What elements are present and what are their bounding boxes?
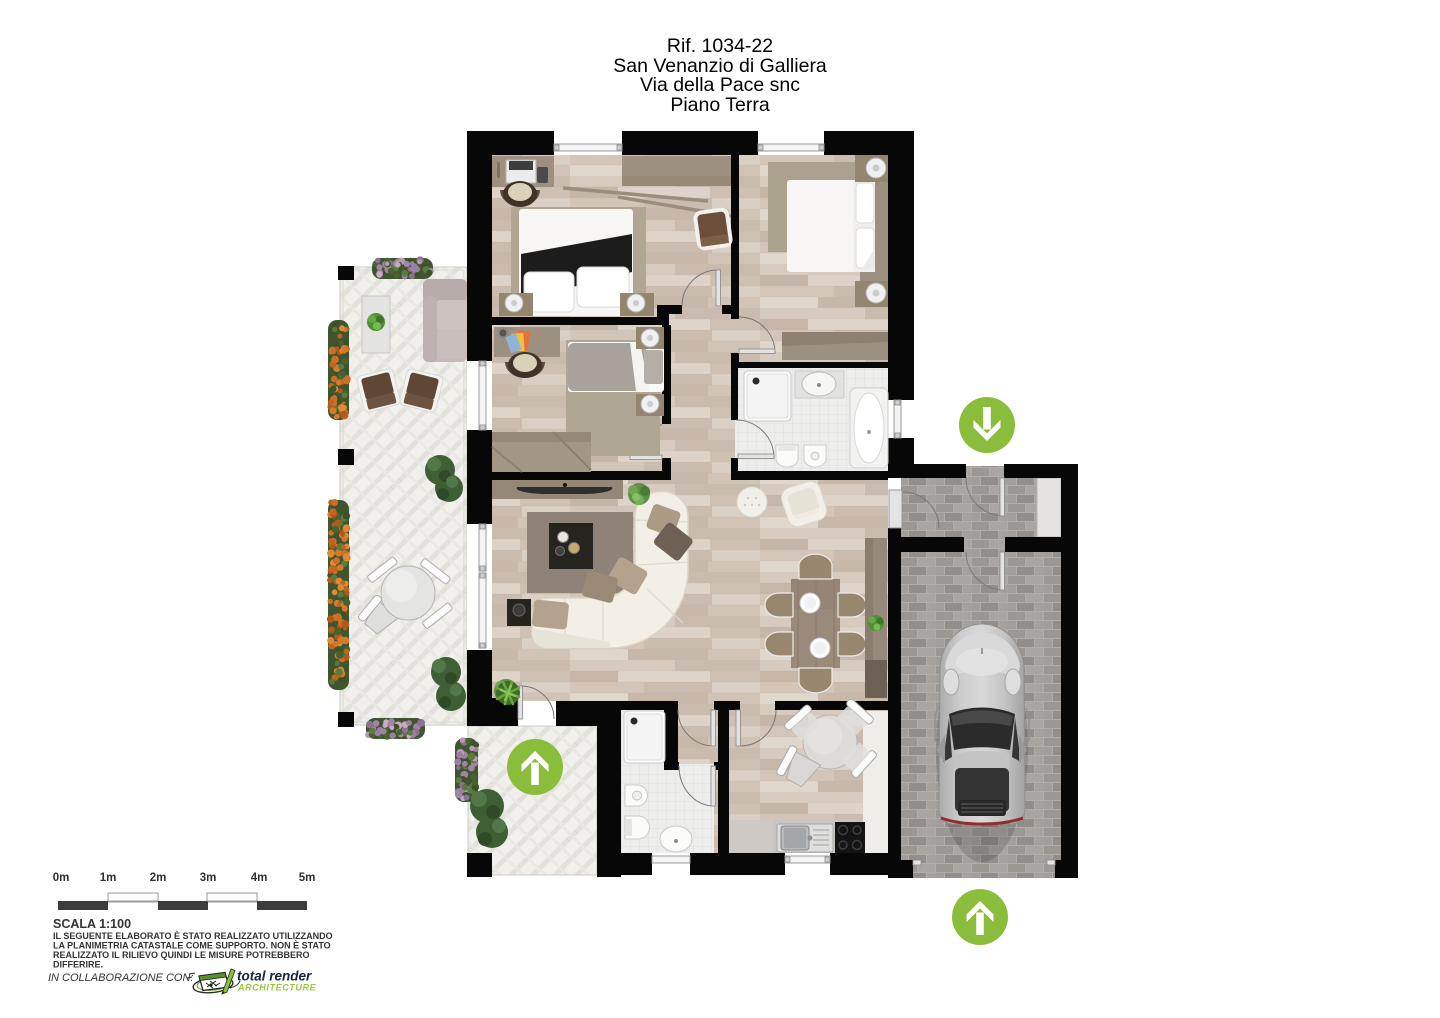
svg-text:SCALA 1:100: SCALA 1:100 bbox=[53, 917, 131, 931]
svg-text:4m: 4m bbox=[251, 872, 268, 884]
svg-text:ARCHITECTURE: ARCHITECTURE bbox=[237, 983, 317, 993]
svg-text:IN COLLABORAZIONE CON:: IN COLLABORAZIONE CON: bbox=[48, 972, 193, 984]
svg-text:REALIZZATO IL RILIEVO QUINDI L: REALIZZATO IL RILIEVO QUINDI LE MISURE P… bbox=[53, 950, 310, 960]
svg-text:total render: total render bbox=[237, 969, 312, 984]
svg-text:Piano Terra: Piano Terra bbox=[670, 94, 770, 116]
svg-text:3m: 3m bbox=[200, 872, 217, 884]
svg-text:Via della Pace snc: Via della Pace snc bbox=[640, 74, 800, 96]
svg-text:2m: 2m bbox=[150, 872, 167, 884]
svg-text:1m: 1m bbox=[100, 872, 117, 884]
svg-text:5m: 5m bbox=[299, 872, 316, 884]
svg-text:DIFFERIRE.: DIFFERIRE. bbox=[53, 960, 103, 970]
svg-text:IL SEGUENTE ELABORATO È STATO: IL SEGUENTE ELABORATO È STATO REALIZZATO… bbox=[53, 931, 333, 941]
svg-text:LA PLANIMETRIA CATASTALE COME: LA PLANIMETRIA CATASTALE COME SUPPORTO. … bbox=[53, 941, 331, 951]
svg-text:Rif. 1034-22: Rif. 1034-22 bbox=[667, 35, 773, 57]
svg-text:0m: 0m bbox=[53, 872, 70, 884]
